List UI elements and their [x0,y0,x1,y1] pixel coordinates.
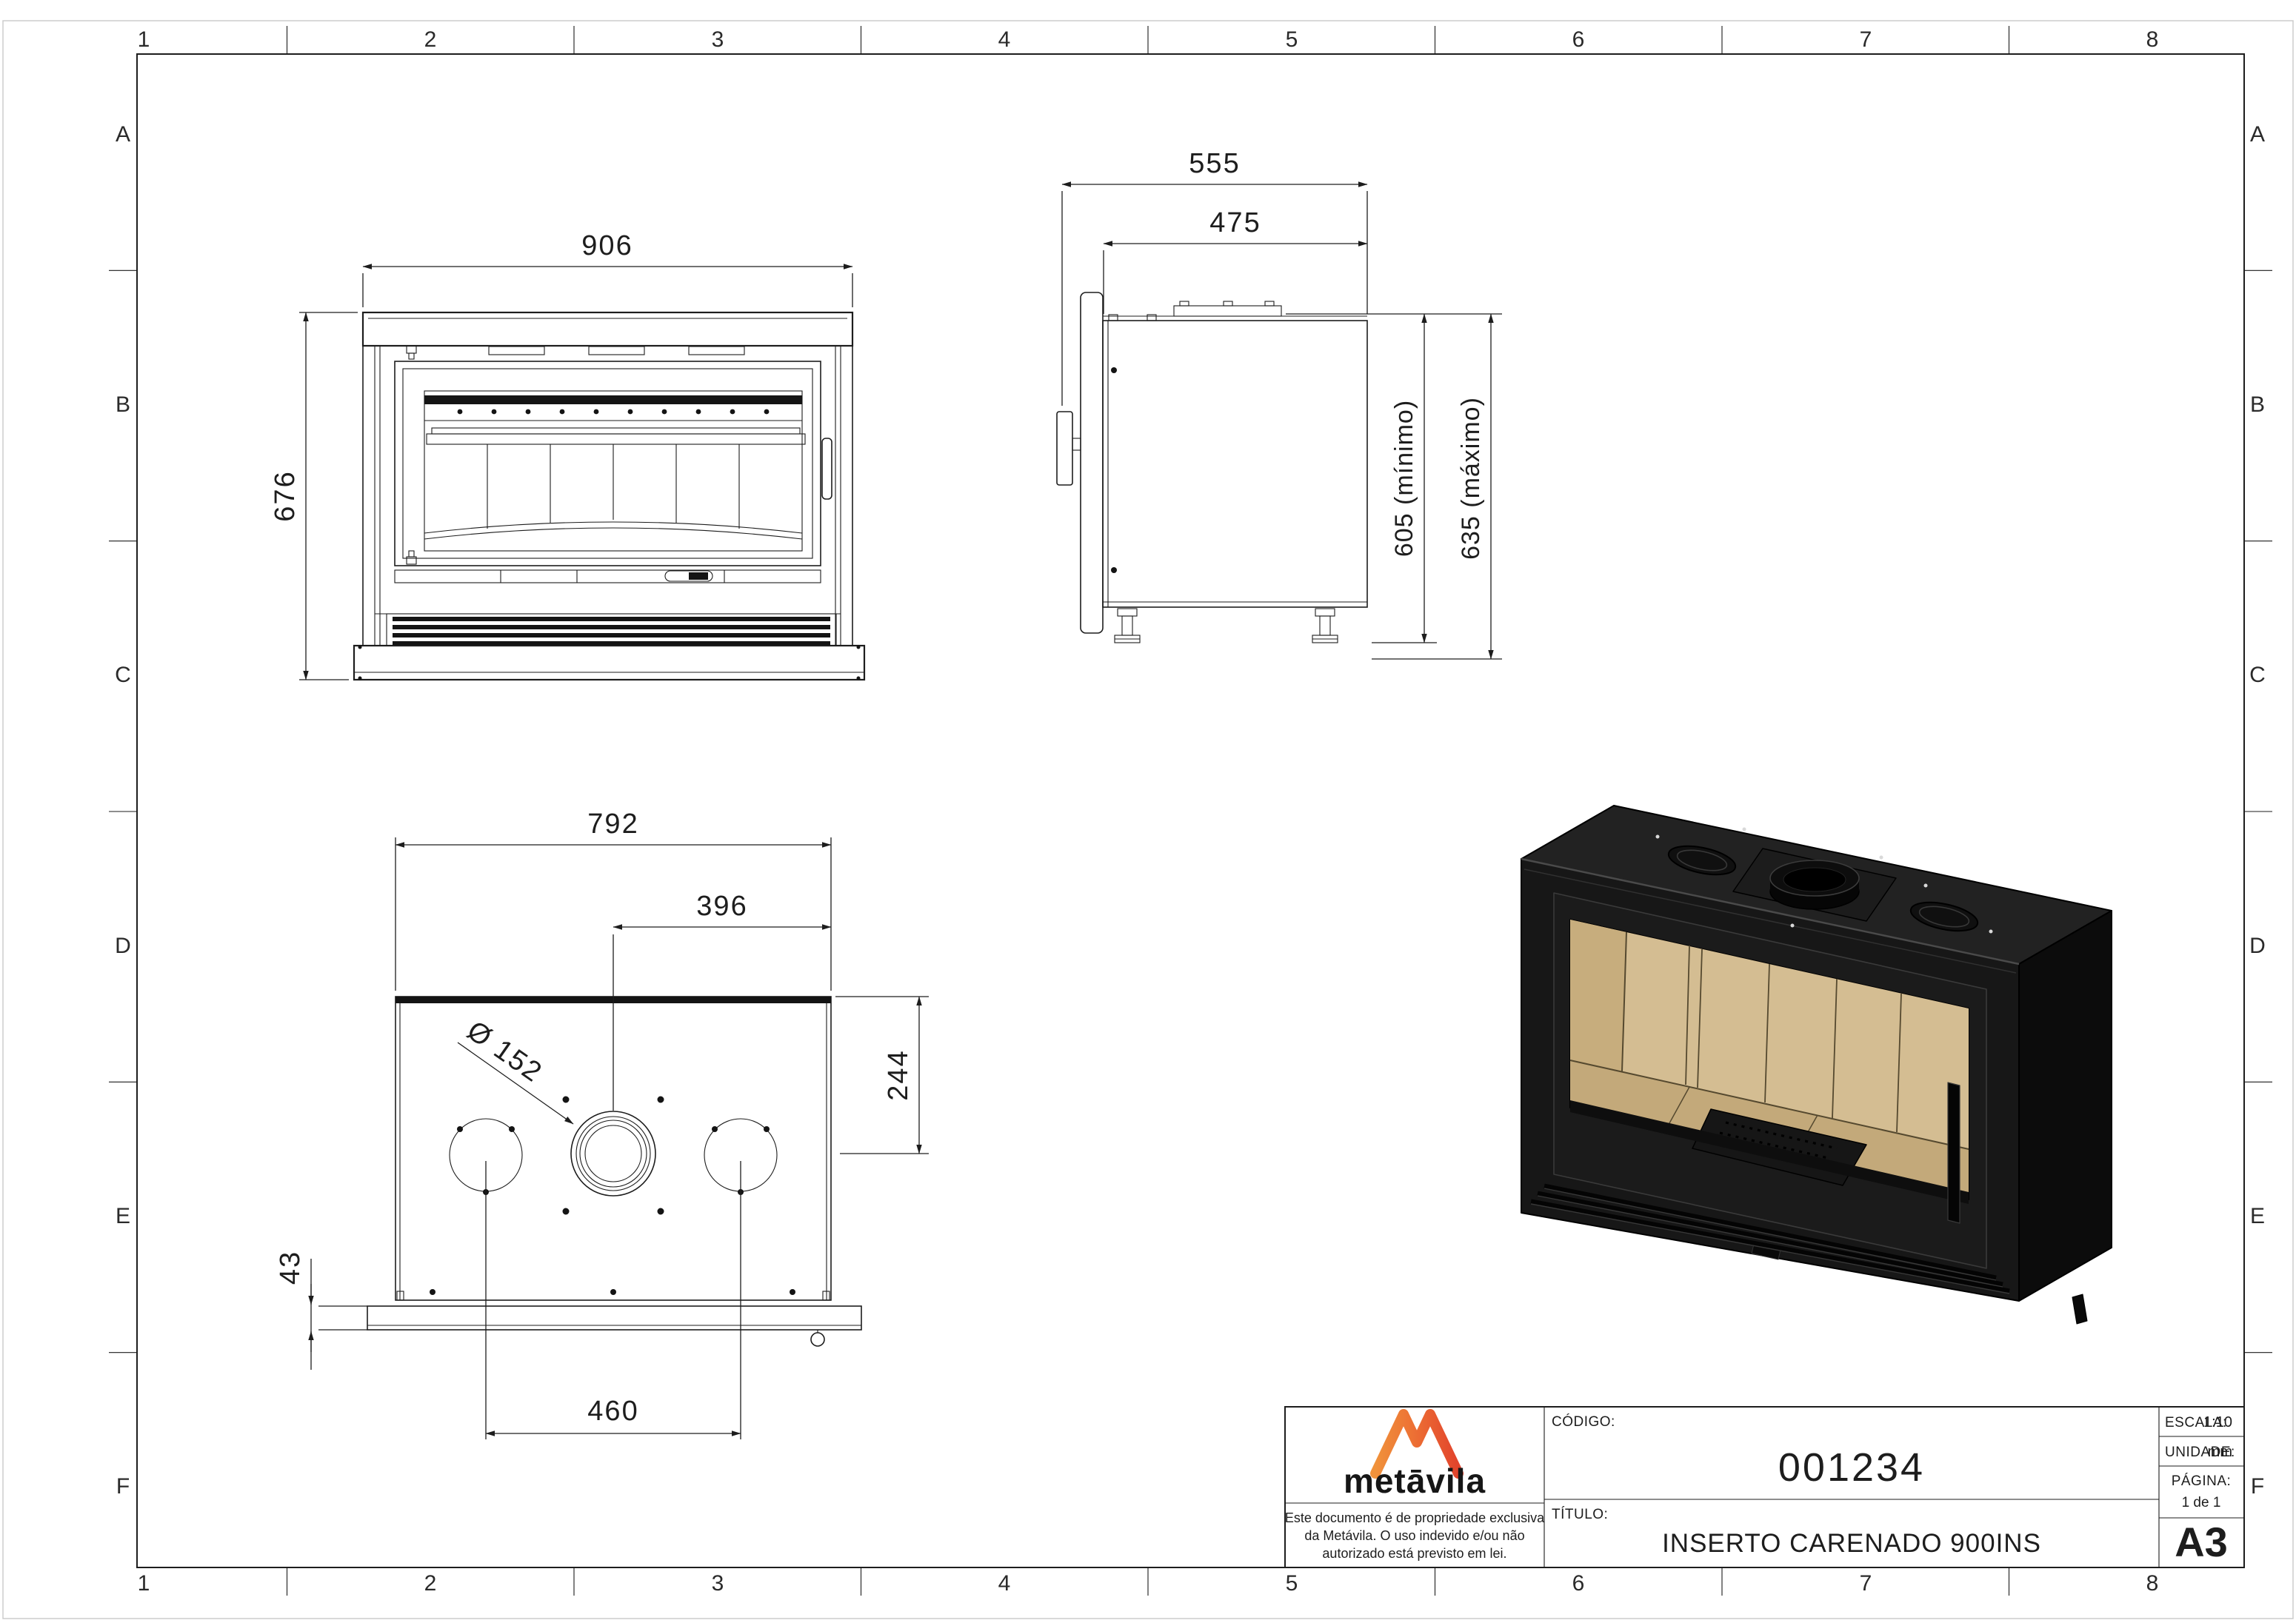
zone-col-label: 1 [138,27,150,52]
zone-row-label: D [115,934,131,958]
dim-d152: Ø 152 [461,1015,548,1089]
side-body [1103,321,1367,607]
zone-col-label: 7 [1860,1571,1872,1596]
sheet-outer-edge [3,21,2293,1619]
sheet-format: A3 [2175,1519,2228,1565]
zone-col-label: 5 [1286,27,1298,52]
zone-col-label: 5 [1286,1571,1298,1596]
zone-col-label: 2 [424,1571,437,1596]
side-front-frame [1081,292,1103,633]
front-dim-width: 906 [363,230,852,307]
zone-col-label: 6 [1572,27,1585,52]
titulo-cell: TÍTULO: INSERTO CARENADO 900INS [1552,1507,2041,1558]
zone-row-label: E [2250,1204,2265,1228]
codigo-cell: CÓDIGO: 001234 [1552,1413,1925,1490]
dim-906: 906 [581,230,633,261]
zone-row-label: F [116,1474,130,1499]
sheet-border: 1 2 3 4 5 6 7 8 1 2 3 4 5 6 7 8 A B C D … [3,21,2293,1619]
disclaimer-line: da Metávila. O uso indevido e/ou não [1304,1528,1524,1543]
codigo-label: CÓDIGO: [1552,1413,1615,1430]
dim-43: 43 [275,1251,306,1285]
front-base-ledge [354,646,864,680]
side-dim-depth-inner: 475 [1104,207,1367,314]
drawing-frame [137,54,2244,1567]
zone-col-label: 3 [712,1571,724,1596]
title-block: metāvila Este documento é de propriedade… [1285,1407,2244,1567]
zone-col-label: 4 [998,27,1011,52]
zone-col-label: 2 [424,27,437,52]
zone-row-label: A [2250,122,2265,147]
dim-244: 244 [883,1049,914,1100]
zone-col-label: 4 [998,1571,1011,1596]
front-airwash-holes [458,409,770,415]
company-logo: metāvila [1344,1414,1486,1500]
zone-row-label: B [116,392,130,417]
front-firebrick-joints [424,444,802,539]
iso-render [1521,806,2112,1324]
top-flue-collar [563,1097,664,1215]
front-hinges [407,346,416,564]
front-vent-grille [387,614,836,646]
zone-col-label: 7 [1860,27,1872,52]
zone-col-label: 3 [712,27,724,52]
side-handle [1057,412,1081,485]
dim-460: 460 [587,1396,638,1427]
pagina-value: 1 de 1 [2182,1495,2221,1510]
front-top-slots [489,347,744,355]
iso-foot [2072,1294,2087,1324]
zone-ticks [109,26,2272,1596]
dim-676: 676 [270,470,301,521]
iso-right-face [2019,911,2112,1301]
iso-door-handle [1948,1082,1960,1223]
side-top-plate [1109,301,1281,321]
titulo-value: INSERTO CARENADO 900INS [1662,1529,2041,1558]
top-view: 792 396 Ø 152 244 43 460 [275,809,929,1439]
dim-475: 475 [1209,207,1261,238]
codigo-value: 001234 [1778,1445,1925,1490]
escala-value: 1:10 [2203,1414,2232,1430]
zone-row-label: D [2249,934,2266,958]
top-dim-flue-diameter: Ø 152 [458,1015,573,1124]
zone-labels-right: A B C D E F [2249,122,2266,1499]
top-pull-ring [811,1333,824,1346]
top-dim-lip: 43 [275,1251,367,1370]
dim-792: 792 [587,809,638,840]
zone-row-label: C [2249,663,2266,687]
top-front-screws [397,1289,830,1300]
zone-col-label: 8 [2146,27,2159,52]
zone-col-label: 8 [2146,1571,2159,1596]
front-door-handle [822,438,832,499]
dim-635-maximo: 635 (máximo) [1457,397,1485,560]
zone-row-label: C [115,663,131,687]
front-top-cap [363,312,852,346]
front-view: 906 676 [270,230,864,680]
zone-row-label: E [116,1204,130,1228]
drawing-sheet: 1 2 3 4 5 6 7 8 1 2 3 4 5 6 7 8 A B C D … [0,0,2296,1623]
dim-555: 555 [1189,148,1240,179]
front-dim-height: 676 [270,312,358,680]
side-feet [1115,609,1338,643]
iso-left-bricks [1570,920,1626,1071]
titulo-label: TÍTULO: [1552,1507,1608,1522]
zone-row-label: A [116,122,130,147]
dim-396: 396 [696,891,747,922]
logo-wordmark: metāvila [1344,1462,1486,1500]
dim-605-minimo: 605 (mínimo) [1390,400,1418,557]
zone-row-label: B [2250,392,2265,417]
info-column: ESCALA: 1:10 UNIDADE: mm PÁGINA: 1 de 1 … [2165,1414,2235,1565]
unidade-value: mm [2208,1444,2232,1460]
pagina-label: PÁGINA: [2172,1473,2232,1489]
zone-col-label: 6 [1572,1571,1585,1596]
top-base-strip [367,1306,861,1346]
side-view: 555 475 605 (mínimo) 635 (máximo) [1057,148,1502,659]
front-airwash-band [424,395,802,404]
disclaimer-line: autorizado está previsto em lei. [1322,1546,1506,1561]
top-dim-rear-offset: 244 [835,997,929,1154]
front-under-strip [395,570,821,583]
disclaimer: Este documento é de propriedade exclusiv… [1285,1510,1545,1561]
zone-labels-left: A B C D E F [115,122,131,1499]
technical-drawing-svg: 1 2 3 4 5 6 7 8 1 2 3 4 5 6 7 8 A B C D … [0,0,2296,1623]
disclaimer-line: Este documento é de propriedade exclusiv… [1285,1510,1545,1525]
zone-row-label: F [2251,1474,2264,1499]
front-baffle-shelf [427,428,805,444]
zone-col-label: 1 [138,1571,150,1596]
